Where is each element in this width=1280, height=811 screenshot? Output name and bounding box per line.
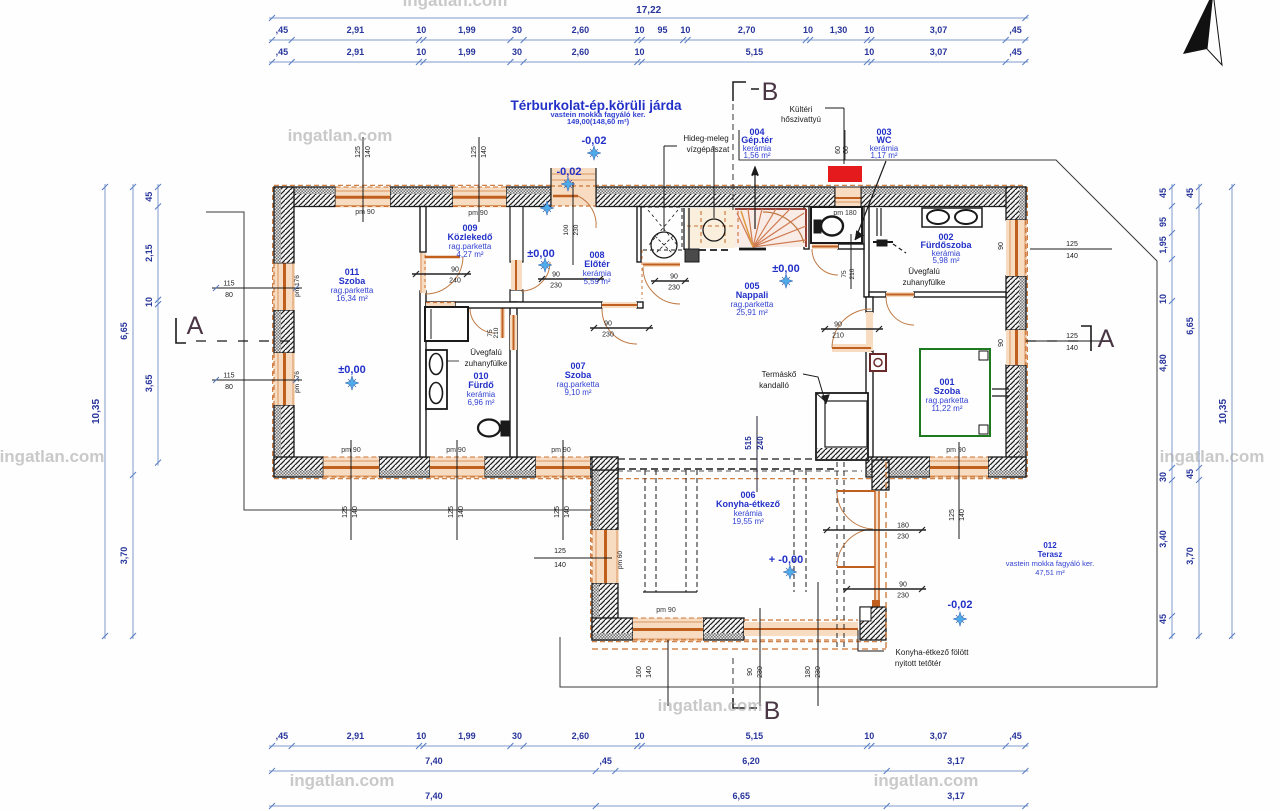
svg-text:9,10 m²: 9,10 m²	[564, 388, 591, 397]
svg-text:2,15: 2,15	[144, 244, 154, 262]
svg-text:140: 140	[481, 146, 488, 158]
svg-text:125: 125	[342, 506, 349, 518]
svg-text:2,60: 2,60	[572, 731, 590, 741]
svg-text:10,35: 10,35	[91, 399, 102, 424]
svg-text:60: 60	[835, 146, 842, 154]
svg-text:4,80: 4,80	[1158, 354, 1168, 372]
svg-text:140: 140	[458, 506, 465, 518]
svg-text:3,07: 3,07	[930, 731, 948, 741]
svg-text:30: 30	[1158, 472, 1168, 482]
svg-text:19,55 m²: 19,55 m²	[732, 517, 764, 526]
svg-text:115: 115	[223, 281, 234, 288]
svg-text:10: 10	[416, 731, 426, 741]
svg-text:5,15: 5,15	[746, 47, 764, 57]
svg-text:Fürdő: Fürdő	[468, 380, 494, 390]
svg-text:5,98 m²: 5,98 m²	[932, 256, 959, 265]
svg-text:6,65: 6,65	[732, 791, 750, 801]
svg-text:60: 60	[843, 146, 850, 154]
svg-text:vastein mokka fagyáló ker.: vastein mokka fagyáló ker.	[1006, 559, 1094, 568]
svg-text:230: 230	[757, 666, 764, 678]
svg-text:Szoba: Szoba	[565, 370, 592, 380]
svg-text:140: 140	[554, 562, 566, 569]
svg-text:,45: ,45	[599, 756, 612, 766]
svg-text:100: 100	[563, 224, 570, 235]
svg-text:230: 230	[602, 332, 614, 339]
svg-text:B: B	[762, 78, 779, 106]
svg-text:10: 10	[416, 25, 426, 35]
svg-text:pm 90: pm 90	[468, 210, 488, 217]
svg-text:3,70: 3,70	[119, 547, 129, 565]
svg-text:10: 10	[864, 731, 874, 741]
svg-text:Üvegfalú: Üvegfalú	[908, 267, 940, 276]
svg-text:230: 230	[668, 285, 680, 292]
svg-text:pm 180: pm 180	[833, 210, 856, 217]
svg-text:2,60: 2,60	[572, 25, 590, 35]
svg-text:240: 240	[756, 436, 765, 450]
svg-text:140: 140	[959, 509, 966, 521]
svg-text:125: 125	[949, 509, 956, 521]
svg-text:7,40: 7,40	[425, 791, 443, 801]
svg-text:1,17 m²: 1,17 m²	[870, 151, 897, 160]
svg-text:2,91: 2,91	[347, 25, 365, 35]
svg-text:ingatlan.com: ingatlan.com	[0, 447, 104, 466]
svg-text:ingatlan.com: ingatlan.com	[874, 771, 979, 790]
svg-text:5,15: 5,15	[746, 731, 764, 741]
svg-text:90: 90	[899, 582, 907, 589]
svg-text:ingatlan.com: ingatlan.com	[288, 126, 393, 145]
svg-text:180: 180	[897, 523, 909, 530]
svg-text:6,20: 6,20	[742, 756, 760, 766]
svg-text:230: 230	[573, 224, 580, 235]
svg-text:ingatlan.com: ingatlan.com	[290, 771, 395, 790]
svg-text:160: 160	[636, 666, 643, 678]
svg-text:10: 10	[634, 731, 644, 741]
svg-text:80: 80	[225, 384, 233, 391]
svg-text:230: 230	[897, 593, 909, 600]
svg-text:012: 012	[1043, 541, 1057, 550]
svg-text:125: 125	[448, 506, 455, 518]
svg-text:210: 210	[832, 333, 844, 340]
svg-text:-0,02: -0,02	[581, 135, 606, 147]
svg-text:515: 515	[744, 436, 753, 450]
svg-text:10: 10	[680, 25, 690, 35]
svg-text:,45: ,45	[1009, 731, 1022, 741]
svg-text:45: 45	[144, 192, 154, 202]
svg-text:125: 125	[355, 146, 362, 158]
svg-text:ingatlan.com: ingatlan.com	[403, 0, 508, 10]
svg-text:210: 210	[849, 268, 856, 279]
svg-text:+ -0,00: + -0,00	[769, 554, 804, 566]
svg-text:-0,02: -0,02	[947, 599, 972, 611]
svg-text:1,99: 1,99	[458, 47, 476, 57]
svg-text:zuhanyfülke: zuhanyfülke	[903, 278, 946, 287]
svg-text:16,34 m²: 16,34 m²	[336, 294, 368, 303]
svg-text:,45: ,45	[276, 25, 289, 35]
svg-text:3,65: 3,65	[144, 375, 154, 393]
svg-text:140: 140	[564, 506, 571, 518]
svg-text:pm 90: pm 90	[355, 209, 375, 216]
svg-text:2,91: 2,91	[347, 731, 365, 741]
svg-text:Terasz: Terasz	[1038, 550, 1063, 559]
svg-text:±0,00: ±0,00	[338, 364, 365, 376]
svg-text:125: 125	[471, 146, 478, 158]
svg-text:3,07: 3,07	[930, 47, 948, 57]
svg-text:1,30: 1,30	[830, 25, 848, 35]
svg-text:3,40: 3,40	[1158, 530, 1168, 548]
svg-text:10,35: 10,35	[1218, 399, 1229, 424]
svg-text:125: 125	[1066, 241, 1078, 248]
svg-text:45: 45	[1185, 188, 1195, 198]
svg-text:Nappali: Nappali	[736, 290, 769, 300]
svg-text:6,65: 6,65	[1185, 317, 1195, 335]
svg-text:90: 90	[998, 242, 1005, 250]
svg-text:125: 125	[554, 506, 561, 518]
svg-text:1,56 m²: 1,56 m²	[743, 151, 770, 160]
svg-text:3,07: 3,07	[930, 25, 948, 35]
svg-text:A: A	[187, 312, 204, 340]
svg-text:90: 90	[747, 668, 754, 676]
svg-text:30: 30	[512, 731, 522, 741]
svg-text:pm 60: pm 60	[617, 551, 624, 569]
svg-text:10: 10	[1158, 294, 1168, 304]
svg-text:Szoba: Szoba	[339, 276, 366, 286]
svg-text:Termáskő: Termáskő	[762, 370, 797, 379]
svg-text:140: 140	[1066, 345, 1078, 352]
svg-text:90: 90	[998, 339, 1005, 347]
svg-text:45: 45	[1158, 614, 1168, 624]
svg-text:6,96 m²: 6,96 m²	[467, 398, 494, 407]
svg-text:,45: ,45	[276, 731, 289, 741]
svg-text:B: B	[764, 697, 781, 725]
svg-text:125: 125	[1066, 333, 1078, 340]
svg-text:Hideg-meleg: Hideg-meleg	[683, 134, 728, 143]
svg-text:10: 10	[803, 25, 813, 35]
svg-text:pm 176: pm 176	[294, 371, 301, 393]
svg-text:240: 240	[449, 278, 461, 285]
svg-text:10: 10	[634, 25, 644, 35]
svg-text:Kültéri: Kültéri	[790, 105, 813, 114]
svg-text:30: 30	[512, 25, 522, 35]
svg-text:Üvegfalú: Üvegfalú	[470, 348, 502, 357]
svg-text:2,70: 2,70	[738, 25, 756, 35]
svg-text:10: 10	[864, 25, 874, 35]
svg-text:10: 10	[416, 47, 426, 57]
svg-text:-0,02: -0,02	[556, 166, 581, 178]
svg-text:±0,00: ±0,00	[772, 263, 799, 275]
svg-text:140: 140	[365, 146, 372, 158]
svg-text:kandalló: kandalló	[759, 381, 789, 390]
svg-text:90: 90	[451, 267, 459, 274]
svg-text:45: 45	[1158, 188, 1168, 198]
svg-text:±0,00: ±0,00	[527, 248, 554, 260]
svg-text:3,17: 3,17	[947, 791, 965, 801]
svg-text:Konyha-étkező: Konyha-étkező	[716, 499, 781, 509]
svg-text:5,59 m²: 5,59 m²	[583, 277, 610, 286]
svg-text:140: 140	[352, 506, 359, 518]
svg-text:230: 230	[897, 534, 909, 541]
svg-text:47,51 m²: 47,51 m²	[1035, 568, 1065, 577]
svg-text:ingatlan.com: ingatlan.com	[658, 696, 763, 715]
svg-text:230: 230	[815, 666, 822, 678]
svg-text:75: 75	[841, 270, 848, 278]
svg-text:pm 90: pm 90	[656, 607, 676, 614]
svg-text:pm 90: pm 90	[551, 447, 571, 454]
svg-text:pm 90: pm 90	[341, 447, 361, 454]
svg-text:ingatlan.com: ingatlan.com	[1160, 447, 1265, 466]
svg-text:210: 210	[493, 327, 500, 338]
svg-text:30: 30	[512, 47, 522, 57]
svg-text:pm 90: pm 90	[446, 447, 466, 454]
svg-text:90: 90	[552, 272, 560, 279]
svg-text:,45: ,45	[1009, 25, 1022, 35]
svg-text:,45: ,45	[276, 47, 289, 57]
svg-text:11,22 m²: 11,22 m²	[932, 404, 963, 413]
svg-text:2,60: 2,60	[572, 47, 590, 57]
svg-text:115: 115	[223, 373, 234, 380]
svg-text:1,99: 1,99	[458, 25, 476, 35]
svg-text:149,00(148,60 m²): 149,00(148,60 m²)	[567, 117, 630, 126]
svg-text:nyitott tetőtér: nyitott tetőtér	[895, 659, 942, 668]
svg-text:95: 95	[657, 25, 667, 35]
svg-text:90: 90	[834, 322, 842, 329]
svg-text:140: 140	[646, 666, 653, 678]
svg-text:pm 90: pm 90	[946, 447, 966, 454]
svg-text:140: 140	[1066, 253, 1078, 260]
svg-text:Közlekedő: Közlekedő	[447, 232, 493, 242]
svg-text:vízgépászat: vízgépászat	[687, 145, 730, 154]
svg-text:25,91 m²: 25,91 m²	[736, 308, 768, 317]
svg-text:3,70: 3,70	[1185, 547, 1195, 565]
svg-text:125: 125	[554, 548, 566, 555]
svg-text:90: 90	[604, 321, 612, 328]
svg-text:80: 80	[225, 292, 233, 299]
svg-text:Előtér: Előtér	[584, 259, 610, 269]
svg-text:,45: ,45	[1009, 47, 1022, 57]
svg-text:zuhanyfülke: zuhanyfülke	[465, 359, 508, 368]
svg-text:90: 90	[670, 274, 678, 281]
svg-text:hőszivattyú: hőszivattyú	[781, 115, 821, 124]
svg-text:2,91: 2,91	[347, 47, 365, 57]
svg-text:Konyha-étkező fölött: Konyha-étkező fölött	[896, 648, 970, 657]
svg-text:45: 45	[1185, 469, 1195, 479]
svg-text:95: 95	[1158, 217, 1168, 227]
svg-text:1,99: 1,99	[458, 731, 476, 741]
svg-text:17,22: 17,22	[636, 5, 661, 16]
svg-text:pm 176: pm 176	[294, 275, 301, 297]
svg-text:6,65: 6,65	[119, 322, 129, 340]
svg-text:A: A	[1098, 325, 1115, 353]
svg-text:230: 230	[550, 283, 562, 290]
svg-text:10: 10	[144, 297, 154, 307]
svg-text:3,17: 3,17	[947, 756, 965, 766]
svg-text:4,27 m²: 4,27 m²	[456, 250, 483, 259]
svg-text:1,95: 1,95	[1158, 236, 1168, 254]
svg-text:7,40: 7,40	[425, 756, 443, 766]
svg-text:10: 10	[634, 47, 644, 57]
svg-text:180: 180	[805, 666, 812, 678]
svg-text:Szoba: Szoba	[934, 386, 961, 396]
svg-text:10: 10	[864, 47, 874, 57]
